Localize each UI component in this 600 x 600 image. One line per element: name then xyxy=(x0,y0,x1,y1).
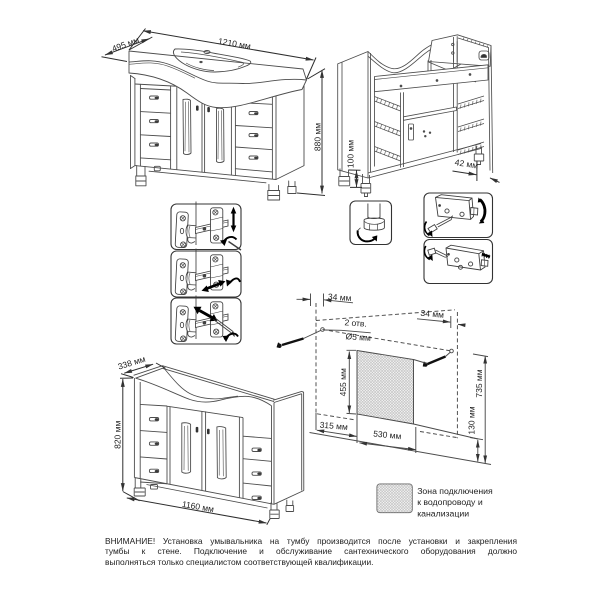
svg-text:820 мм: 820 мм xyxy=(113,421,123,449)
svg-text:100 мм: 100 мм xyxy=(346,140,356,168)
svg-text:880 мм: 880 мм xyxy=(313,123,323,151)
svg-text:2 отв.: 2 отв. xyxy=(344,317,367,329)
svg-text:338 мм: 338 мм xyxy=(117,354,147,372)
svg-text:1210 мм: 1210 мм xyxy=(217,36,251,51)
svg-text:530 мм: 530 мм xyxy=(373,428,402,441)
svg-text:315 мм: 315 мм xyxy=(319,420,348,432)
svg-text:канализации: канализации xyxy=(417,508,469,518)
svg-text:455 мм: 455 мм xyxy=(338,368,348,396)
svg-text:42 мм: 42 мм xyxy=(454,157,479,171)
svg-text:1160 мм: 1160 мм xyxy=(181,499,215,514)
svg-text:Зона подключения: Зона подключения xyxy=(417,486,493,496)
svg-text:34 мм: 34 мм xyxy=(420,308,444,320)
svg-text:130 мм: 130 мм xyxy=(467,406,477,434)
svg-text:735 мм: 735 мм xyxy=(474,369,484,397)
svg-text:495 мм: 495 мм xyxy=(110,35,140,54)
svg-text:34 мм: 34 мм xyxy=(328,291,352,303)
svg-text:Ø5 мм: Ø5 мм xyxy=(345,331,371,343)
svg-text:к водопроводу и: к водопроводу и xyxy=(417,497,483,507)
